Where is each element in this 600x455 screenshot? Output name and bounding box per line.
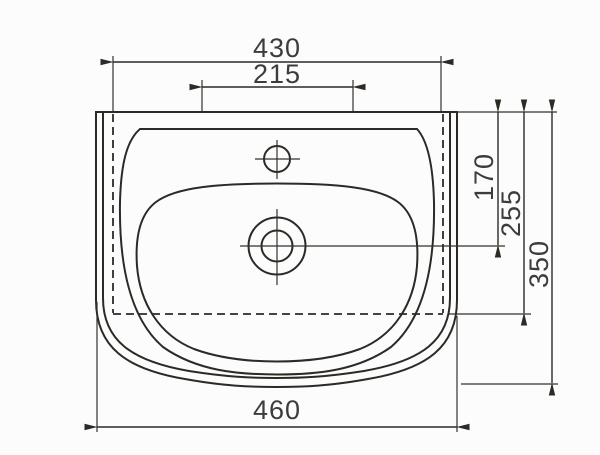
dim-label-460: 460 [253, 395, 301, 425]
dim-label-350: 350 [524, 240, 554, 288]
dim-label-215: 215 [253, 59, 301, 89]
dim-label-255: 255 [496, 189, 526, 237]
drawing-svg: 430 215 170 255 350 460 [0, 0, 600, 455]
washbasin-technical-drawing: 430 215 170 255 350 460 [0, 0, 600, 455]
dim-label-170: 170 [469, 153, 499, 201]
